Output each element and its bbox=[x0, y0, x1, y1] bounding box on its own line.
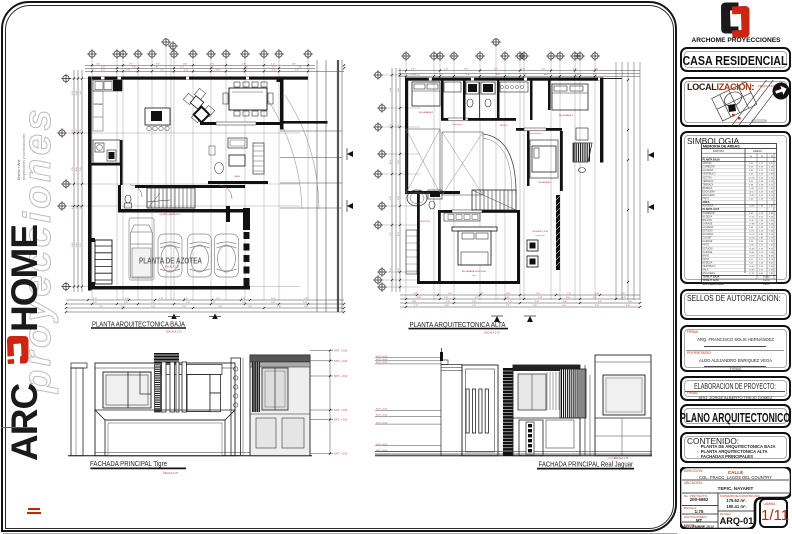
svg-text:N.P.T. + 0.00: N.P.T. + 0.00 bbox=[334, 351, 348, 353]
svg-text:9.74: 9.74 bbox=[769, 259, 774, 261]
svg-text:8.72: 8.72 bbox=[769, 248, 774, 250]
svg-text:3.42: 3.42 bbox=[271, 302, 275, 304]
svg-text:4.75: 4.75 bbox=[184, 298, 188, 300]
svg-text:4.72: 4.72 bbox=[272, 69, 276, 71]
svg-text:17.55: 17.55 bbox=[749, 216, 755, 218]
svg-text:3.12: 3.12 bbox=[536, 293, 540, 295]
svg-text:VESTIBULO: VESTIBULO bbox=[703, 266, 716, 268]
svg-text:5.55: 5.55 bbox=[769, 191, 774, 193]
svg-text:4.83: 4.83 bbox=[749, 170, 754, 172]
svg-text:1.84: 1.84 bbox=[183, 63, 187, 65]
svg-text:PATIO: PATIO bbox=[703, 198, 710, 201]
svg-text:1.59: 1.59 bbox=[99, 306, 103, 308]
svg-text:m: m bbox=[750, 155, 752, 158]
svg-text:N.P.T. + 0.00: N.P.T. + 0.00 bbox=[334, 361, 348, 363]
svg-text:3.69: 3.69 bbox=[292, 63, 296, 65]
svg-text:AREA: AREA bbox=[703, 201, 710, 204]
svg-text:154.62: 154.62 bbox=[763, 277, 770, 279]
svg-text:2.72: 2.72 bbox=[414, 305, 418, 307]
svg-text:3.99: 3.99 bbox=[295, 69, 299, 71]
svg-text:2.69: 2.69 bbox=[398, 88, 400, 92]
svg-text:4.69: 4.69 bbox=[769, 213, 774, 215]
svg-text:N.P.T.+0.00: N.P.T.+0.00 bbox=[376, 422, 388, 424]
svg-text:4.64: 4.64 bbox=[101, 66, 105, 68]
svg-text:3.19: 3.19 bbox=[759, 174, 764, 176]
svg-text:5.92: 5.92 bbox=[769, 273, 774, 275]
svg-text:3.85: 3.85 bbox=[298, 66, 302, 68]
svg-text:SALA: SALA bbox=[234, 175, 240, 178]
svg-text:COMEDOR: COMEDOR bbox=[703, 213, 715, 215]
svg-text:6.70: 6.70 bbox=[759, 167, 764, 169]
svg-text:8.70: 8.70 bbox=[769, 195, 774, 197]
svg-text:4.13: 4.13 bbox=[398, 232, 400, 236]
svg-text:PLANTA ARQUITECTONICA ALTA: PLANTA ARQUITECTONICA ALTA bbox=[410, 322, 506, 329]
svg-text:3.31: 3.31 bbox=[390, 268, 392, 272]
svg-text:1.38: 1.38 bbox=[505, 297, 509, 299]
svg-text:xxxxxxxxxx: xxxxxxxxxx bbox=[452, 124, 462, 126]
svg-text:PARTIDA: PARTIDA bbox=[713, 149, 724, 153]
svg-text:PLANTA ALTA: PLANTA ALTA bbox=[703, 208, 720, 211]
svg-text:2.72: 2.72 bbox=[160, 69, 164, 71]
svg-text:GARAGE: GARAGE bbox=[703, 251, 713, 254]
svg-text:1.20: 1.20 bbox=[96, 63, 100, 65]
svg-text:13.78: 13.78 bbox=[749, 255, 755, 257]
svg-text:4.63: 4.63 bbox=[598, 301, 602, 303]
svg-text:4.54: 4.54 bbox=[243, 69, 247, 71]
svg-text:10.71: 10.71 bbox=[749, 231, 755, 233]
svg-text:6.18: 6.18 bbox=[759, 191, 764, 193]
svg-text:16.43: 16.43 bbox=[749, 266, 755, 268]
svg-text:3.90: 3.90 bbox=[759, 255, 764, 257]
svg-text:2.81: 2.81 bbox=[132, 66, 136, 68]
svg-text:3.87: 3.87 bbox=[156, 63, 160, 65]
svg-text:7.12: 7.12 bbox=[769, 199, 774, 201]
svg-text:6.59: 6.59 bbox=[749, 174, 754, 176]
svg-text:2.70: 2.70 bbox=[277, 306, 281, 308]
svg-text:3.53: 3.53 bbox=[182, 306, 186, 308]
svg-text:4.30: 4.30 bbox=[573, 69, 577, 71]
svg-text:2.95: 2.95 bbox=[129, 63, 133, 65]
svg-text:3.41: 3.41 bbox=[93, 302, 97, 304]
svg-text:1.88: 1.88 bbox=[479, 293, 483, 295]
svg-text:ESTACIONAMIENTO: ESTACIONAMIENTO bbox=[160, 213, 181, 216]
svg-text:3.83: 3.83 bbox=[398, 160, 400, 164]
svg-text:3.24: 3.24 bbox=[390, 88, 392, 92]
svg-text:5.53: 5.53 bbox=[759, 266, 764, 268]
svg-text:4.11: 4.11 bbox=[759, 170, 764, 172]
svg-text:TERRAZA: TERRAZA bbox=[703, 180, 714, 183]
svg-text:N.P.T.+0.00: N.P.T.+0.00 bbox=[376, 415, 388, 417]
svg-text:6.45: 6.45 bbox=[769, 223, 774, 225]
svg-text:N.P.T.+0.00: N.P.T.+0.00 bbox=[376, 444, 388, 446]
svg-text:1.68: 1.68 bbox=[80, 205, 82, 209]
svg-text:xxxxxxxxxxxx: xxxxxxxxxxxx bbox=[530, 133, 542, 135]
svg-text:2.75: 2.75 bbox=[210, 66, 214, 68]
svg-text:3.43: 3.43 bbox=[76, 91, 78, 95]
svg-text:16.45: 16.45 bbox=[749, 252, 755, 254]
svg-text:AZOTEA: AZOTEA bbox=[703, 176, 713, 179]
svg-text:4.72: 4.72 bbox=[72, 205, 74, 209]
svg-text:1.15: 1.15 bbox=[242, 302, 246, 304]
svg-text:1.76: 1.76 bbox=[304, 298, 308, 300]
svg-text:COCINA: COCINA bbox=[94, 103, 102, 106]
svg-text:AREAS: AREAS bbox=[753, 149, 762, 153]
svg-text:4.64: 4.64 bbox=[544, 74, 548, 76]
svg-text:1.99: 1.99 bbox=[76, 205, 78, 209]
svg-text:2.79: 2.79 bbox=[506, 305, 510, 307]
svg-text:9.42: 9.42 bbox=[759, 216, 764, 218]
svg-text:2.41: 2.41 bbox=[186, 302, 190, 304]
svg-text:PASILLO: PASILLO bbox=[500, 124, 509, 127]
svg-text:4.77: 4.77 bbox=[593, 74, 597, 76]
svg-text:PLANTA BAJA: PLANTA BAJA bbox=[703, 159, 721, 162]
svg-text:3.17: 3.17 bbox=[759, 245, 764, 247]
svg-text:3.87: 3.87 bbox=[76, 129, 78, 133]
svg-text:3.44: 3.44 bbox=[563, 301, 567, 303]
svg-text:BODEGA: BODEGA bbox=[703, 187, 713, 190]
svg-text:15.89: 15.89 bbox=[749, 248, 755, 250]
svg-text:FACHADA PRINCIPAL Real Jaguar: FACHADA PRINCIPAL Real Jaguar bbox=[539, 461, 634, 468]
svg-text:N.P.T.+0.00: N.P.T.+0.00 bbox=[376, 409, 388, 411]
svg-text:3.28: 3.28 bbox=[72, 243, 74, 247]
svg-text:GARAGE: GARAGE bbox=[703, 240, 713, 243]
svg-text:3.97: 3.97 bbox=[494, 69, 498, 71]
svg-text:1.56: 1.56 bbox=[151, 302, 155, 304]
svg-text:2.24: 2.24 bbox=[538, 297, 542, 299]
svg-text:2.31: 2.31 bbox=[80, 167, 82, 171]
svg-text:BODEGA: BODEGA bbox=[703, 215, 713, 218]
svg-text:2.69: 2.69 bbox=[398, 196, 400, 200]
svg-text:4.93: 4.93 bbox=[76, 167, 78, 171]
svg-text:2.51: 2.51 bbox=[180, 66, 184, 68]
svg-text:9.13: 9.13 bbox=[759, 163, 764, 165]
svg-text:SALA: SALA bbox=[703, 269, 709, 272]
svg-text:3.72: 3.72 bbox=[749, 259, 754, 261]
svg-text:4.74: 4.74 bbox=[184, 69, 188, 71]
svg-text:8.41: 8.41 bbox=[769, 163, 774, 165]
svg-text:13.14: 13.14 bbox=[749, 234, 755, 236]
svg-text:3.23: 3.23 bbox=[72, 91, 74, 95]
svg-text:3.90: 3.90 bbox=[759, 241, 764, 243]
svg-text:1.67: 1.67 bbox=[72, 129, 74, 133]
svg-text:N.P.T.+0.00: N.P.T.+0.00 bbox=[376, 450, 388, 452]
svg-text:TERRAZA Y SITE: TERRAZA Y SITE bbox=[532, 230, 549, 233]
svg-text:3.75: 3.75 bbox=[244, 66, 248, 68]
svg-text:14.31: 14.31 bbox=[749, 188, 755, 190]
svg-text:3.67: 3.67 bbox=[101, 69, 105, 71]
svg-text:3.76: 3.76 bbox=[390, 196, 392, 200]
svg-text:14.28: 14.28 bbox=[749, 238, 755, 240]
svg-text:1.64: 1.64 bbox=[124, 302, 128, 304]
svg-text:4.86: 4.86 bbox=[759, 234, 764, 236]
svg-text:3.12: 3.12 bbox=[448, 293, 452, 295]
svg-text:1.55: 1.55 bbox=[759, 199, 764, 201]
svg-text:1.26: 1.26 bbox=[562, 305, 566, 307]
svg-text:154.32: 154.32 bbox=[763, 280, 770, 282]
svg-text:RECAMARA PRINCIPAL: RECAMARA PRINCIPAL bbox=[462, 270, 487, 273]
svg-text:2.79: 2.79 bbox=[390, 124, 392, 128]
svg-text:ESCALERA: ESCALERA bbox=[703, 272, 716, 275]
svg-text:ESTUDIO: ESTUDIO bbox=[703, 231, 713, 233]
svg-text:VESTIDOR: VESTIDOR bbox=[420, 221, 431, 223]
svg-text:7.23: 7.23 bbox=[769, 241, 774, 243]
svg-text:14.56: 14.56 bbox=[749, 206, 755, 208]
svg-text:ALACENA: ALACENA bbox=[703, 226, 714, 229]
svg-text:ESCALA 1:75: ESCALA 1:75 bbox=[484, 331, 500, 334]
svg-text:1.76: 1.76 bbox=[466, 74, 470, 76]
svg-text:1.94: 1.94 bbox=[304, 306, 308, 308]
svg-text:2.86: 2.86 bbox=[769, 231, 774, 233]
svg-text:1.10: 1.10 bbox=[444, 297, 448, 299]
svg-text:4.62: 4.62 bbox=[769, 170, 774, 172]
svg-text:ESCALA 1:75: ESCALA 1:75 bbox=[614, 457, 629, 460]
svg-text:N.P.T. + 0.00: N.P.T. + 0.00 bbox=[334, 420, 348, 422]
svg-text:BODEGA: BODEGA bbox=[703, 261, 713, 264]
svg-text:N.P.T.+0.00: N.P.T.+0.00 bbox=[376, 359, 388, 361]
svg-text:3.94: 3.94 bbox=[216, 69, 220, 71]
svg-text:6.42: 6.42 bbox=[769, 234, 774, 236]
svg-text:3.84: 3.84 bbox=[769, 266, 774, 268]
svg-text:6.33: 6.33 bbox=[759, 195, 764, 197]
svg-text:1.36: 1.36 bbox=[769, 177, 774, 179]
svg-text:1.73: 1.73 bbox=[508, 301, 512, 303]
svg-text:4.69: 4.69 bbox=[417, 297, 421, 299]
svg-text:N.P.T. + 0.00: N.P.T. + 0.00 bbox=[334, 410, 348, 412]
svg-text:1.26: 1.26 bbox=[80, 129, 82, 133]
svg-text:3.43: 3.43 bbox=[759, 188, 764, 190]
svg-text:4.17: 4.17 bbox=[621, 293, 625, 295]
svg-text:17.88: 17.88 bbox=[749, 223, 755, 225]
svg-text:1.57: 1.57 bbox=[475, 297, 479, 299]
svg-text:16.99: 16.99 bbox=[749, 195, 755, 197]
svg-text:4.49: 4.49 bbox=[496, 74, 500, 76]
svg-text:7.47: 7.47 bbox=[769, 245, 774, 247]
svg-text:1.54: 1.54 bbox=[151, 306, 155, 308]
svg-text:4.37: 4.37 bbox=[446, 301, 450, 303]
svg-text:xxxxxx xxxx: xxxxxx xxxx bbox=[535, 235, 545, 237]
svg-text:6.89: 6.89 bbox=[749, 213, 754, 215]
svg-text:2.42: 2.42 bbox=[749, 199, 754, 201]
svg-text:6.98: 6.98 bbox=[749, 184, 754, 186]
svg-text:2.23: 2.23 bbox=[241, 298, 245, 300]
svg-text:FACHADA PRINCIPAL Tigre: FACHADA PRINCIPAL Tigre bbox=[90, 461, 167, 468]
svg-text:2.75: 2.75 bbox=[390, 232, 392, 236]
svg-text:4.58: 4.58 bbox=[769, 167, 774, 169]
svg-text:4.49: 4.49 bbox=[159, 298, 163, 300]
svg-text:7.28: 7.28 bbox=[769, 252, 774, 254]
svg-text:BALCON: BALCON bbox=[703, 219, 713, 222]
svg-text:7.26: 7.26 bbox=[749, 241, 754, 243]
svg-text:17.92: 17.92 bbox=[749, 273, 755, 275]
svg-text:5.50: 5.50 bbox=[759, 181, 764, 183]
svg-text:TERRAZA: TERRAZA bbox=[703, 183, 714, 186]
svg-text:2.14: 2.14 bbox=[541, 69, 545, 71]
svg-text:VESTIBULO: VESTIBULO bbox=[703, 174, 716, 176]
svg-text:5.75: 5.75 bbox=[759, 259, 764, 261]
svg-text:1.67: 1.67 bbox=[769, 206, 774, 208]
svg-text:ESCALA 1:75: ESCALA 1:75 bbox=[165, 266, 180, 269]
svg-text:N.P.T.+0.00: N.P.T.+0.00 bbox=[376, 362, 388, 364]
svg-text:4.69: 4.69 bbox=[566, 297, 570, 299]
svg-text:4.69: 4.69 bbox=[126, 69, 130, 71]
svg-text:3.20: 3.20 bbox=[769, 227, 774, 229]
svg-text:1.89: 1.89 bbox=[472, 301, 476, 303]
svg-text:MEMORIA DE AREAS: MEMORIA DE AREAS bbox=[703, 145, 740, 149]
svg-text:9.55: 9.55 bbox=[749, 163, 754, 165]
svg-text:1.19: 1.19 bbox=[472, 305, 476, 307]
svg-text:6.28: 6.28 bbox=[759, 223, 764, 225]
svg-text:2.67: 2.67 bbox=[272, 66, 276, 68]
svg-text:CLOSET: CLOSET bbox=[703, 238, 713, 240]
svg-text:19.10: 19.10 bbox=[749, 191, 755, 193]
svg-text:TOTAL P. ALTA: TOTAL P. ALTA bbox=[703, 279, 720, 282]
svg-text:1.84: 1.84 bbox=[575, 74, 579, 76]
svg-text:2.36: 2.36 bbox=[769, 220, 774, 222]
svg-text:1.49: 1.49 bbox=[759, 262, 764, 264]
svg-text:2.33: 2.33 bbox=[303, 302, 307, 304]
svg-text:3.16: 3.16 bbox=[759, 231, 764, 233]
svg-text:4.32: 4.32 bbox=[626, 305, 630, 307]
svg-text:7.84: 7.84 bbox=[759, 206, 764, 208]
svg-text:TOTAL P. BAJA: TOTAL P. BAJA bbox=[703, 276, 720, 279]
svg-text:2.75: 2.75 bbox=[80, 243, 82, 247]
svg-text:1.91: 1.91 bbox=[759, 238, 764, 240]
svg-text:4.91: 4.91 bbox=[210, 63, 214, 65]
svg-text:1.12: 1.12 bbox=[412, 74, 416, 76]
svg-text:12.47: 12.47 bbox=[749, 220, 755, 222]
svg-text:RECAMARA 2: RECAMARA 2 bbox=[419, 111, 434, 114]
svg-text:198.67: 198.67 bbox=[763, 284, 770, 285]
svg-text:COMEDOR: COMEDOR bbox=[703, 167, 715, 169]
svg-text:ALACENA: ALACENA bbox=[703, 205, 714, 208]
svg-text:6.49: 6.49 bbox=[759, 227, 764, 229]
svg-text:RECAMARA 3: RECAMARA 3 bbox=[559, 114, 574, 117]
svg-text:4.59: 4.59 bbox=[759, 184, 764, 186]
svg-text:1.40: 1.40 bbox=[594, 69, 598, 71]
svg-text:1.44: 1.44 bbox=[271, 298, 275, 300]
svg-text:N.P.T. + 0.00: N.P.T. + 0.00 bbox=[334, 454, 348, 456]
svg-text:3.98: 3.98 bbox=[506, 293, 510, 295]
svg-text:ESTUDIO: ESTUDIO bbox=[703, 248, 713, 250]
svg-text:2.95: 2.95 bbox=[76, 243, 78, 247]
svg-text:3.71: 3.71 bbox=[93, 298, 97, 300]
svg-text:3.79: 3.79 bbox=[242, 63, 246, 65]
svg-text:2.52: 2.52 bbox=[769, 188, 774, 190]
svg-text:ALACENA: ALACENA bbox=[703, 169, 714, 172]
svg-text:AZOTEA: AZOTEA bbox=[703, 162, 713, 165]
svg-text:1.49: 1.49 bbox=[218, 306, 222, 308]
svg-text:15.26: 15.26 bbox=[749, 177, 755, 179]
svg-text:PLANTA DE AZOTEA: PLANTA DE AZOTEA bbox=[139, 257, 202, 266]
svg-text:1.88: 1.88 bbox=[412, 301, 416, 303]
svg-text:6.81: 6.81 bbox=[769, 262, 774, 264]
svg-text:m: m bbox=[761, 155, 763, 158]
svg-text:PATIO: PATIO bbox=[703, 244, 710, 247]
svg-text:6.24: 6.24 bbox=[749, 167, 754, 169]
svg-text:1.43: 1.43 bbox=[248, 306, 252, 308]
svg-text:14.57: 14.57 bbox=[749, 245, 755, 247]
svg-text:1.94: 1.94 bbox=[413, 293, 417, 295]
svg-text:2.39: 2.39 bbox=[154, 66, 158, 68]
svg-text:ESCALA 1:75: ESCALA 1:75 bbox=[166, 331, 182, 334]
svg-text:5.70: 5.70 bbox=[759, 252, 764, 254]
svg-text:3.89: 3.89 bbox=[769, 174, 774, 176]
svg-text:m: m bbox=[771, 155, 773, 158]
svg-text:BANO: BANO bbox=[703, 254, 710, 257]
svg-text:3.60: 3.60 bbox=[628, 301, 632, 303]
svg-text:5.12: 5.12 bbox=[769, 184, 774, 186]
svg-text:1.23: 1.23 bbox=[567, 293, 571, 295]
svg-text:3.10: 3.10 bbox=[759, 177, 764, 179]
svg-text:GARAGE: GARAGE bbox=[703, 222, 713, 225]
svg-text:N.P.T. + 0.00: N.P.T. + 0.00 bbox=[334, 376, 348, 378]
svg-text:6.31: 6.31 bbox=[749, 181, 754, 183]
svg-text:4.99: 4.99 bbox=[445, 305, 449, 307]
svg-text:3.68: 3.68 bbox=[535, 301, 539, 303]
svg-text:ESCALA 1:75: ESCALA 1:75 bbox=[163, 472, 178, 475]
svg-text:SUP. CONSTRUIDA: SUP. CONSTRUIDA bbox=[703, 283, 724, 285]
svg-text:2.89: 2.89 bbox=[464, 69, 468, 71]
svg-text:1.53: 1.53 bbox=[216, 298, 220, 300]
svg-text:8.23: 8.23 bbox=[769, 216, 774, 218]
svg-text:1.42: 1.42 bbox=[80, 91, 82, 95]
svg-text:2.29: 2.29 bbox=[121, 306, 125, 308]
svg-text:2.39: 2.39 bbox=[411, 69, 415, 71]
svg-text:3.77: 3.77 bbox=[521, 69, 525, 71]
svg-text:1.42: 1.42 bbox=[444, 69, 448, 71]
svg-text:4.18: 4.18 bbox=[533, 305, 537, 307]
svg-text:3.60: 3.60 bbox=[593, 297, 597, 299]
svg-text:8.53: 8.53 bbox=[769, 255, 774, 257]
svg-text:3.49: 3.49 bbox=[749, 227, 754, 229]
svg-text:3.74: 3.74 bbox=[125, 298, 129, 300]
svg-text:1.65: 1.65 bbox=[759, 220, 764, 222]
svg-text:3.55: 3.55 bbox=[749, 262, 754, 264]
svg-text:2.96: 2.96 bbox=[595, 293, 599, 295]
svg-text:xxxx: xxxx bbox=[472, 275, 476, 277]
svg-text:1.73: 1.73 bbox=[769, 238, 774, 240]
svg-text:4.33: 4.33 bbox=[398, 268, 400, 272]
svg-text:5.51: 5.51 bbox=[759, 270, 764, 272]
svg-text:6.54: 6.54 bbox=[759, 273, 764, 275]
svg-text:16.80: 16.80 bbox=[749, 270, 755, 272]
svg-text:4.79: 4.79 bbox=[769, 181, 774, 183]
svg-text:ESCALERA: ESCALERA bbox=[703, 194, 716, 197]
svg-text:ESCALERA: ESCALERA bbox=[703, 190, 716, 193]
svg-text:4.25: 4.25 bbox=[759, 213, 764, 215]
svg-text:3.14: 3.14 bbox=[271, 63, 275, 65]
svg-text:2.23: 2.23 bbox=[439, 74, 443, 76]
svg-text:4.39: 4.39 bbox=[595, 305, 599, 307]
svg-text:5.69: 5.69 bbox=[769, 270, 774, 272]
svg-text:2.61: 2.61 bbox=[398, 124, 400, 128]
svg-text:4.22: 4.22 bbox=[390, 160, 392, 164]
svg-text:3.76: 3.76 bbox=[759, 248, 764, 250]
svg-text:N.P.T.+0.00: N.P.T.+0.00 bbox=[376, 356, 388, 358]
svg-text:PATIO: PATIO bbox=[703, 258, 710, 261]
svg-text:ALACENA: ALACENA bbox=[703, 233, 714, 236]
svg-text:3.25: 3.25 bbox=[622, 297, 626, 299]
svg-text:2.76: 2.76 bbox=[72, 167, 74, 171]
svg-text:RECAMARA 4: RECAMARA 4 bbox=[539, 181, 553, 184]
svg-text:1.24: 1.24 bbox=[211, 302, 215, 304]
svg-text:4.37: 4.37 bbox=[523, 74, 527, 76]
